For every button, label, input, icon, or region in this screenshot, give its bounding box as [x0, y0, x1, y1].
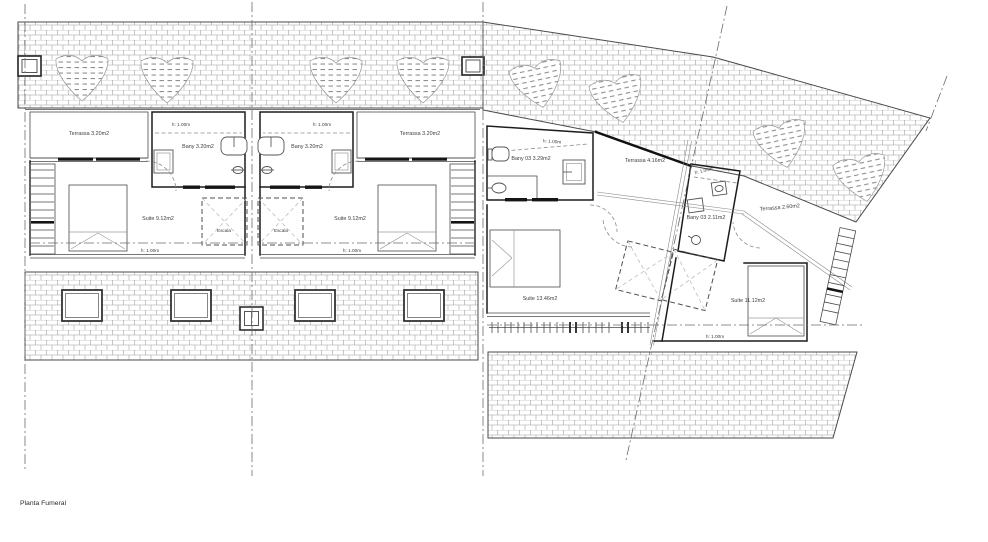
- boundary-line: [926, 76, 947, 131]
- lower-right-roof-band: [488, 352, 857, 438]
- stairs-symbol: [202, 198, 247, 245]
- unit-d-bany-label: Bany 03 2.11m2: [687, 215, 726, 221]
- unit-b-bany-label: Bany 3.20m2: [291, 144, 323, 150]
- sink-counter-symbol: [487, 176, 537, 200]
- skylight: [404, 290, 444, 321]
- chimney-symbol: [240, 307, 263, 330]
- ladder-symbol: [820, 228, 856, 325]
- unit-a-bany-height-label: h: 1.00m: [172, 122, 190, 127]
- toilet-symbol: [488, 147, 509, 161]
- unit-a-escala-label: Escala: [217, 228, 231, 233]
- unit-a-geometry: [30, 112, 247, 258]
- unit-d-suite-height-label: h: 1.00m: [706, 334, 724, 339]
- left-roof-band: [18, 22, 484, 108]
- unit-d-suite-label: Suite 11.12m2: [731, 298, 765, 304]
- terrace-edge: [30, 158, 148, 162]
- unit-c-bany-label: Bany 03 3.29m2: [511, 156, 550, 162]
- bed-symbol: [490, 230, 560, 287]
- skylight: [295, 290, 335, 321]
- right-roof-area: [483, 22, 930, 222]
- bed-symbol: [69, 185, 127, 251]
- corridor-wall: [650, 140, 692, 346]
- door-swing-arc: [733, 222, 760, 248]
- skylight: [62, 290, 102, 321]
- unit-a-terrassa-label: Terrassa 3.20m2: [69, 131, 109, 137]
- basin-symbol: [688, 236, 701, 245]
- chimney-symbol: [18, 56, 41, 76]
- unit-a-suite-height-label: h: 1.00m: [141, 248, 159, 253]
- unit-b-terrassa-label: Terrassa 3.20m2: [400, 131, 440, 137]
- railing: [489, 322, 650, 333]
- unit-b-bany-height-label: h: 1.00m: [313, 122, 331, 127]
- floor-plan-drawing: Terrassa 3.20m2 h: 1.00m Bany 3.20m2 Sui…: [0, 0, 988, 542]
- chimney-symbol: [462, 57, 484, 75]
- sink-symbol: [231, 167, 245, 174]
- floor-plan-canvas: Terrassa 3.20m2 h: 1.00m Bany 3.20m2 Sui…: [0, 0, 988, 542]
- unit-b-escala-label: Escala: [274, 228, 288, 233]
- plan-caption: Planta Fumeral: [20, 500, 67, 507]
- unit-c: h: 1.00m Bany 03 3.29m2 Terrassa 4.16m2 …: [487, 126, 665, 333]
- sink-symbol: [711, 181, 727, 196]
- ladder-symbol: [30, 164, 55, 254]
- unit-c-bany-height-label: h: 1.00m: [543, 138, 562, 144]
- walkway: [597, 192, 852, 290]
- unit-b-suite-height-label: h: 1.00m: [343, 248, 361, 253]
- unit-b-geometry: [258, 112, 475, 258]
- unit-c-terrassa-label: Terrassa 4.16m2: [625, 158, 665, 164]
- unit-a-suite-label: Suite 9.12m2: [142, 216, 174, 222]
- lower-left-roof-band: [25, 272, 478, 360]
- unit-b-suite-label: Suite 9.12m2: [334, 216, 366, 222]
- unit-d-terrassa-label: Terrassa 2.60m2: [760, 203, 801, 212]
- shower-symbol: [563, 160, 585, 184]
- left-building: Terrassa 3.20m2 h: 1.00m Bany 3.20m2 Sui…: [25, 110, 480, 259]
- shower-symbol: [154, 150, 173, 173]
- unit-a-bany-label: Bany 3.20m2: [182, 144, 214, 150]
- door-swing-arc: [590, 205, 617, 232]
- suite-walls: [30, 161, 245, 255]
- unit-c-suite-label: Suite 13.46m2: [523, 296, 558, 302]
- bathtub-symbol: [221, 137, 247, 155]
- skylight: [171, 290, 211, 321]
- door-leaf-marks: [183, 186, 235, 189]
